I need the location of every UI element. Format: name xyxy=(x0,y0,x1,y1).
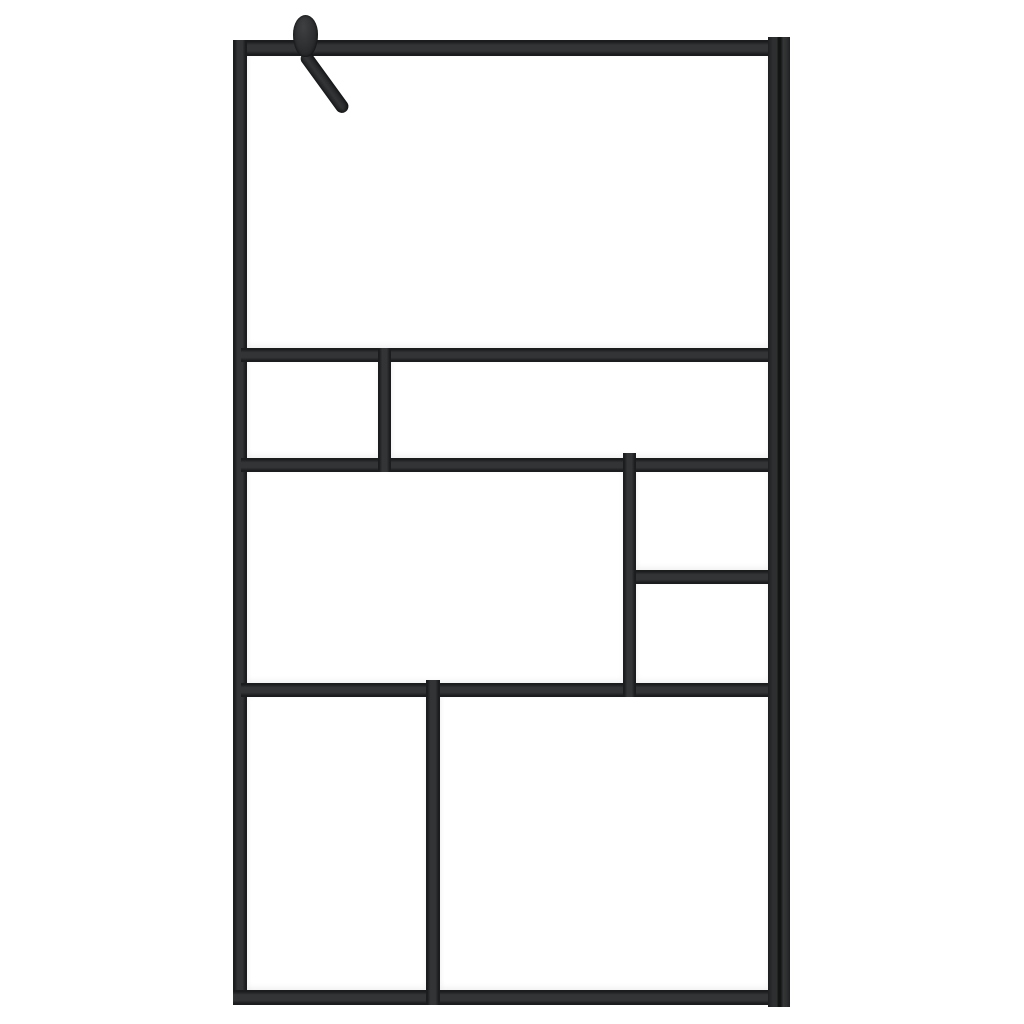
pane-row2-right xyxy=(391,362,768,458)
pane-row2-left xyxy=(247,362,378,458)
pane-row3-left xyxy=(247,472,623,683)
pane-row4-left xyxy=(247,697,426,990)
divider-v-row3 xyxy=(623,453,636,697)
divider-v-row2 xyxy=(378,348,391,472)
towel-hook-knob-icon xyxy=(293,15,318,57)
wall-profile xyxy=(768,37,790,1007)
shower-screen xyxy=(0,0,1024,1024)
divider-h2 xyxy=(241,458,770,472)
pane-row4-right xyxy=(440,697,768,990)
divider-h-right xyxy=(629,570,770,584)
divider-v-row4 xyxy=(426,680,440,1005)
bottom-frame-bar xyxy=(233,990,770,1005)
left-frame-bar xyxy=(233,40,247,1005)
product-photo xyxy=(0,0,1024,1024)
divider-h3 xyxy=(241,683,770,697)
divider-h1 xyxy=(241,348,770,362)
pane-row3-right-bottom xyxy=(636,584,768,683)
pane-row3-right-top xyxy=(636,472,768,570)
pane-top xyxy=(247,56,768,348)
